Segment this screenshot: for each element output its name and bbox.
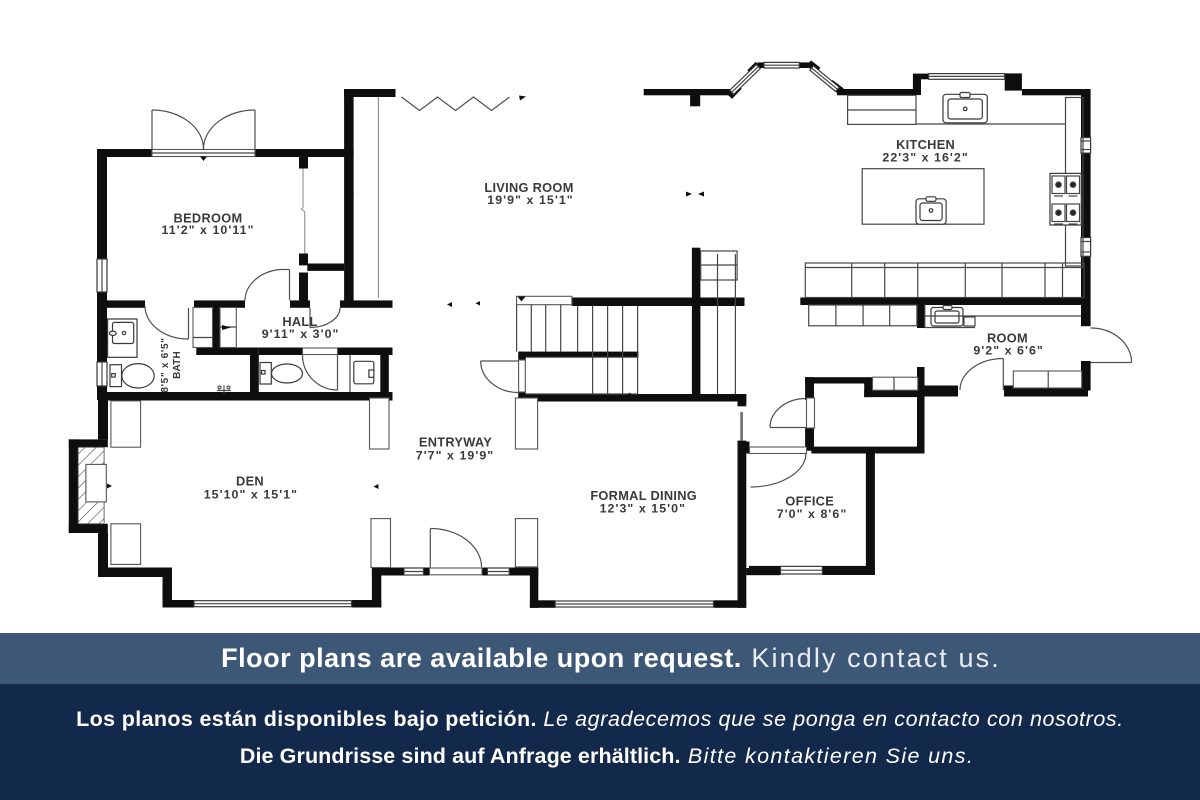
svg-text:9'11" x 3'0": 9'11" x 3'0" bbox=[262, 327, 340, 341]
svg-text:8'5" x 6'5": 8'5" x 6'5" bbox=[160, 337, 171, 392]
svg-text:11'2" x 10'11": 11'2" x 10'11" bbox=[162, 223, 255, 237]
svg-text:7'7" x 19'9": 7'7" x 19'9" bbox=[416, 449, 494, 463]
svg-text:DEN: DEN bbox=[236, 474, 264, 489]
svg-text:22'3" x 16'2": 22'3" x 16'2" bbox=[882, 151, 968, 165]
svg-text:19'9" x 15'1": 19'9" x 15'1" bbox=[487, 193, 573, 207]
svg-text:9'2" x 6'6": 9'2" x 6'6" bbox=[973, 344, 1044, 358]
svg-text:12'3" x 15'0": 12'3" x 15'0" bbox=[600, 502, 686, 516]
svg-text:7'0" x 8'6": 7'0" x 8'6" bbox=[777, 507, 848, 521]
svg-text:BATH: BATH bbox=[172, 351, 183, 379]
svg-text:15'10" x 15'1": 15'10" x 15'1" bbox=[204, 488, 298, 502]
svg-text:ENTRYWAY: ENTRYWAY bbox=[419, 435, 492, 450]
